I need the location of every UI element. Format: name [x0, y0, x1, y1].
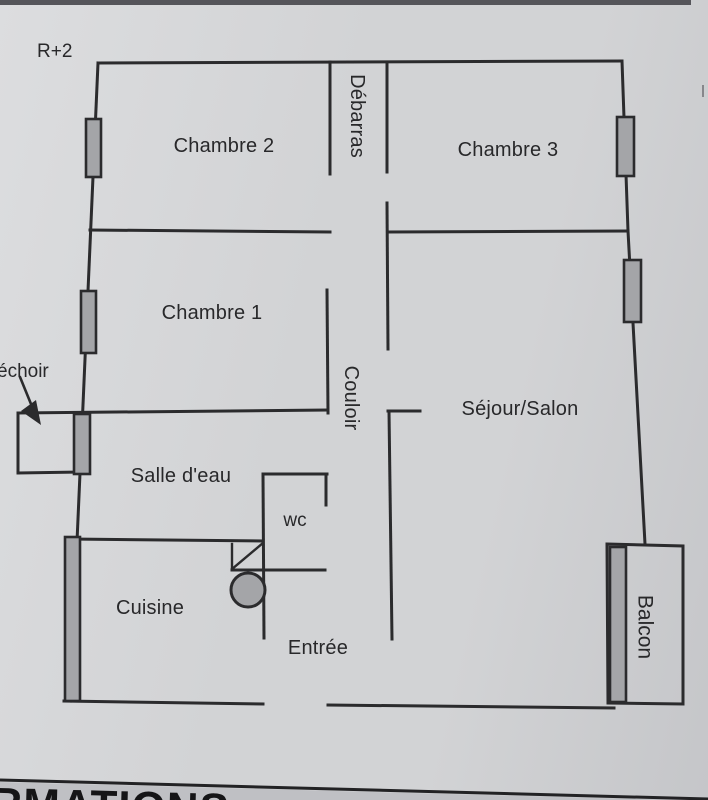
floor-level-label: R+2 [37, 41, 72, 62]
window-chambre1 [81, 291, 96, 353]
wall-couloir-left [327, 290, 328, 413]
room-label-balcon: Balcon [634, 595, 657, 659]
wall-couloir-right-upper [387, 203, 388, 349]
wall-sechoir-bottom [18, 472, 80, 473]
room-label-sejour: Séjour/Salon [462, 398, 579, 420]
wall-bottom-left [64, 701, 263, 704]
water-heater-circle [231, 573, 265, 607]
room-label-chambre1: Chambre 1 [162, 302, 263, 324]
window-cuisine [65, 537, 80, 701]
window-chambre2 [86, 119, 101, 177]
floorplan-drawing: R+2 Chambre 2 Débarras Chambre 3 Chambre… [0, 0, 708, 800]
room-label-chambre3: Chambre 3 [458, 139, 559, 161]
wall-cuisine-entree-divider [263, 474, 264, 638]
wall-cuisine-top [70, 539, 263, 541]
room-label-sechoir: échoir [0, 361, 49, 382]
room-label-couloir: Couloir [340, 366, 362, 431]
room-label-wc: wc [282, 510, 306, 531]
room-label-cuisine: Cuisine [116, 597, 184, 619]
room-label-entree: Entrée [288, 637, 348, 659]
wall-chambre1-bottom [18, 410, 327, 413]
room-label-debarras: Débarras [346, 74, 368, 158]
wall-chambre2-bottom [90, 230, 330, 232]
sechoir-arrowhead-icon [21, 400, 41, 425]
room-label-chambre2: Chambre 2 [174, 135, 275, 157]
footer-title-partial: RMATIONS [0, 779, 230, 800]
room-label-salle-eau: Salle d'eau [131, 465, 232, 487]
floorplan-photo: R+2 Chambre 2 Débarras Chambre 3 Chambre… [0, 0, 708, 800]
window-sechoir [74, 414, 90, 474]
window-chambre3 [617, 117, 634, 176]
wall-couloir-right-lower [389, 411, 392, 639]
wall-chambre3-bottom [388, 231, 628, 232]
door-swing-diagonal [232, 543, 263, 569]
photo-edge-top [0, 0, 691, 5]
wall-bottom-right [328, 705, 614, 708]
window-sejour [624, 260, 641, 322]
wall-top-exterior [98, 61, 622, 63]
window-balcon-door [610, 547, 626, 702]
